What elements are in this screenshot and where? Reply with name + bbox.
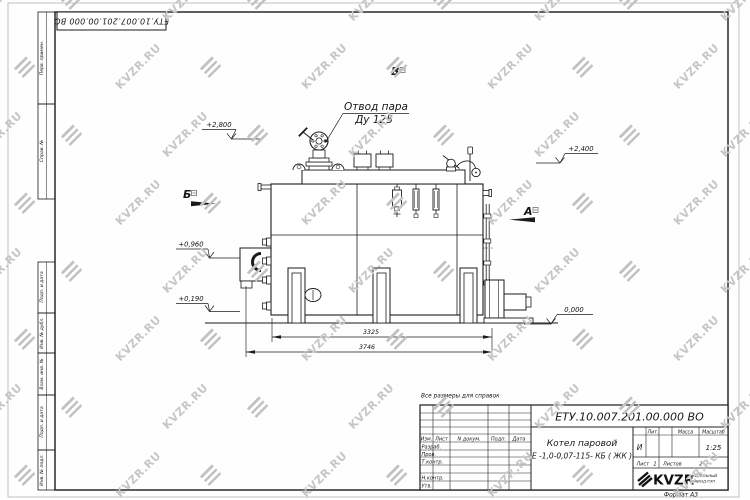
view-marker-a: А — [509, 205, 538, 222]
boiler-view — [205, 128, 558, 323]
svg-text:+2,800: +2,800 — [206, 121, 231, 129]
fan-motor — [504, 294, 526, 310]
corner-stamp-number: ЕТУ.10.007.201.00.000 ВО — [54, 17, 169, 26]
elevation-2800: +2,800 — [202, 121, 263, 139]
svg-text:3325: 3325 — [363, 329, 379, 336]
svg-text:Утв.: Утв. — [422, 484, 433, 490]
svg-text:Отвод пара: Отвод пара — [344, 101, 408, 113]
svg-text:+0,960: +0,960 — [178, 241, 203, 249]
product-name: Котел паровой — [547, 439, 618, 449]
safety-valves — [354, 151, 393, 171]
svg-text:Инв. № дубл.: Инв. № дубл. — [39, 317, 45, 348]
svg-text:Дата: Дата — [512, 437, 526, 443]
corner-stamp: ЕТУ.10.007.201.00.000 ВО — [54, 12, 169, 30]
svg-text:Взам. инв. №: Взам. инв. № — [39, 358, 45, 389]
svg-text:N докум.: N докум. — [457, 437, 480, 443]
dimension-3325: 3325 — [272, 329, 492, 339]
view-arrow-right — [191, 201, 216, 206]
svg-text:+2,400: +2,400 — [568, 145, 593, 153]
svg-text:Лист: Лист — [434, 437, 449, 443]
view-arrow-left — [509, 217, 535, 222]
reference-note: Все размеры для справок — [421, 394, 500, 400]
title-doc-number: ЕТУ.10.007.201.00.000 ВО — [555, 411, 704, 424]
svg-text:3746: 3746 — [359, 344, 375, 351]
svg-text:ЗАВОД РЭП: ЗАВОД РЭП — [692, 479, 715, 484]
elevation-0000: 0,000 — [524, 306, 593, 324]
view-marker-v: В — [391, 65, 405, 78]
scale-value: 1:25 — [706, 444, 722, 452]
svg-text:Листов: Листов — [662, 462, 682, 468]
sheets-value: 2 — [699, 462, 703, 468]
svg-text:Лит.: Лит. — [646, 430, 658, 436]
svg-text:КОТЕЛЬНЫЙ: КОТЕЛЬНЫЙ — [692, 473, 717, 478]
steam-valve — [299, 128, 332, 170]
format-label: Формат А3 — [664, 492, 698, 499]
probe-bulb — [468, 147, 473, 154]
svg-text:Справ. №: Справ. № — [39, 140, 45, 163]
elevation-2400: +2,400 — [536, 145, 598, 163]
svg-text:Т.контр.: Т.контр. — [422, 460, 444, 466]
elevation-0190: +0,190 — [176, 295, 240, 312]
elevation-0960: +0,960 — [176, 241, 240, 259]
kvzr-logo-text: KVZR — [653, 473, 695, 489]
drawing-canvas: Перв. примен. Справ. № Подп. и дата Инв.… — [0, 0, 750, 500]
svg-text:Изм.: Изм. — [421, 437, 433, 443]
svg-text:Подп. и дата: Подп. и дата — [39, 271, 45, 302]
view-marker-b: Б — [183, 188, 216, 206]
sheet-value: 1 — [653, 462, 657, 468]
manhole — [305, 289, 321, 302]
svg-text:Б: Б — [183, 188, 191, 201]
svg-text:Подп.: Подп. — [491, 437, 506, 443]
svg-text:Пров.: Пров. — [422, 452, 437, 458]
engineering-drawing-sheet: Перв. примен. Справ. № Подп. и дата Инв.… — [0, 0, 750, 500]
svg-text:Инв. № подл.: Инв. № подл. — [39, 454, 45, 486]
svg-text:Подп. и дата: Подп. и дата — [39, 406, 45, 437]
svg-text:Перв. примен.: Перв. примен. — [39, 41, 45, 76]
left-margin-labels: Перв. примен. Справ. № Подп. и дата Инв.… — [39, 41, 45, 486]
product-type: Е -1,0-0,07-115- КБ ( ЖК ) — [532, 452, 632, 461]
flue-duct — [483, 190, 492, 293]
svg-text:А: А — [523, 205, 533, 218]
svg-text:0,000: 0,000 — [564, 306, 583, 314]
svg-text:Масштаб: Масштаб — [702, 430, 725, 436]
svg-text:Лист: Лист — [636, 462, 651, 468]
svg-text:Ду 125: Ду 125 — [354, 114, 393, 126]
svg-text:Н.контр.: Н.контр. — [422, 476, 444, 482]
svg-text:+0,190: +0,190 — [178, 295, 203, 303]
steam-outlet-callout: Отвод пара Ду 125 — [325, 101, 409, 142]
dimension-3746: 3746 — [246, 344, 492, 354]
lit-value: И — [637, 443, 643, 452]
svg-text:Масса: Масса — [678, 430, 693, 436]
left-wall-nozzles — [258, 184, 271, 311]
steam-drum-platform — [302, 170, 465, 184]
title-block: ЕТУ.10.007.201.00.000 ВО Котел паровой Е… — [420, 405, 728, 490]
fan-unit — [484, 280, 533, 323]
svg-text:Разраб.: Разраб. — [422, 445, 442, 451]
svg-text:В: В — [391, 65, 399, 78]
